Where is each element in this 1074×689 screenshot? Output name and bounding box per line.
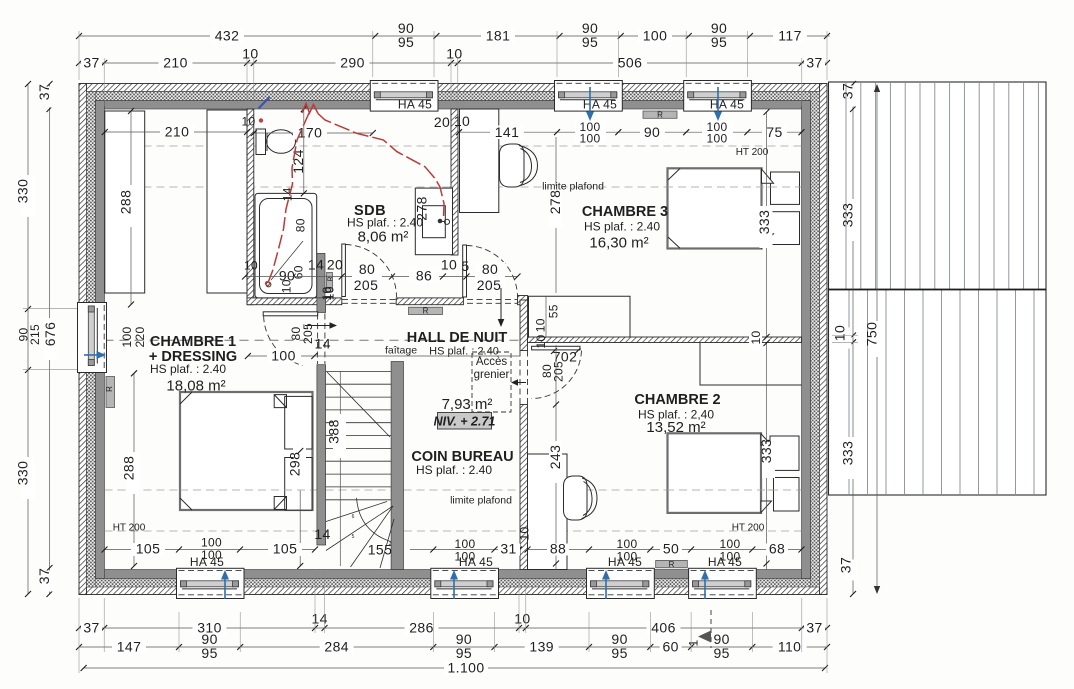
svg-text:286: 286 xyxy=(409,620,434,636)
svg-text:HS plaf. : 2.40: HS plaf. : 2.40 xyxy=(416,463,492,477)
svg-text:10: 10 xyxy=(832,325,848,341)
svg-text:86: 86 xyxy=(416,268,432,284)
svg-text:95: 95 xyxy=(711,34,727,50)
svg-text:155: 155 xyxy=(368,542,393,558)
svg-text:10: 10 xyxy=(517,527,531,541)
svg-text:20: 20 xyxy=(327,257,343,273)
svg-text:grenier: grenier xyxy=(474,369,510,381)
svg-text:1.100: 1.100 xyxy=(447,660,484,676)
svg-text:31: 31 xyxy=(500,541,516,557)
svg-text:215: 215 xyxy=(28,324,42,345)
svg-text:205: 205 xyxy=(477,277,502,293)
svg-text:333: 333 xyxy=(756,210,772,235)
svg-text:105: 105 xyxy=(273,541,298,557)
svg-text:220: 220 xyxy=(133,327,147,348)
svg-text:141: 141 xyxy=(495,124,520,140)
svg-text:68: 68 xyxy=(769,541,785,557)
svg-text:18,08 m²: 18,08 m² xyxy=(166,378,225,395)
svg-text:506: 506 xyxy=(618,55,643,71)
svg-text:14: 14 xyxy=(315,336,331,352)
svg-text:100: 100 xyxy=(271,348,296,364)
svg-text:10: 10 xyxy=(441,257,457,273)
svg-text:Accès: Accès xyxy=(476,356,508,368)
svg-text:100: 100 xyxy=(120,327,134,348)
svg-text:210: 210 xyxy=(165,124,190,140)
svg-text:R: R xyxy=(423,307,429,316)
svg-text:95: 95 xyxy=(714,645,730,661)
svg-text:100: 100 xyxy=(201,548,222,562)
svg-text:R: R xyxy=(105,386,114,392)
svg-text:333: 333 xyxy=(758,439,774,464)
svg-text:10: 10 xyxy=(244,259,258,273)
svg-text:100: 100 xyxy=(455,550,476,564)
svg-text:16,30 m²: 16,30 m² xyxy=(589,235,648,252)
svg-text:NIV. + 2.71: NIV. + 2.71 xyxy=(434,415,496,429)
svg-text:37: 37 xyxy=(83,55,99,71)
svg-text:7,93 m²: 7,93 m² xyxy=(442,396,493,413)
svg-text:750: 750 xyxy=(864,322,880,347)
svg-text:117: 117 xyxy=(778,28,802,44)
svg-text:CHAMBRE 3: CHAMBRE 3 xyxy=(582,204,668,220)
svg-text:205: 205 xyxy=(354,277,379,293)
svg-text:288: 288 xyxy=(121,456,137,481)
svg-text:290: 290 xyxy=(340,55,365,71)
svg-text:limite plafond: limite plafond xyxy=(450,495,512,507)
svg-text:95: 95 xyxy=(582,34,598,50)
svg-text:388: 388 xyxy=(326,419,342,444)
svg-text:330: 330 xyxy=(15,179,31,204)
svg-text:1: 1 xyxy=(687,639,701,646)
svg-text:10: 10 xyxy=(242,115,256,129)
svg-text:110: 110 xyxy=(778,639,802,655)
svg-text:HA 45: HA 45 xyxy=(583,98,617,112)
svg-text:HT 200: HT 200 xyxy=(732,523,765,534)
svg-text:5: 5 xyxy=(461,258,469,274)
svg-text:10: 10 xyxy=(534,318,548,332)
svg-text:95: 95 xyxy=(201,645,217,661)
svg-text:139: 139 xyxy=(529,639,554,655)
svg-text:243: 243 xyxy=(547,445,563,470)
svg-text:HT 200: HT 200 xyxy=(113,523,146,534)
svg-text:10: 10 xyxy=(749,331,763,345)
svg-text:181: 181 xyxy=(486,28,511,44)
svg-text:100: 100 xyxy=(617,550,638,564)
svg-text:80: 80 xyxy=(294,218,308,232)
svg-text:HA 45: HA 45 xyxy=(398,98,432,112)
svg-text:432: 432 xyxy=(215,28,240,44)
svg-text:13,52 m²: 13,52 m² xyxy=(646,419,705,436)
svg-text:37: 37 xyxy=(83,620,99,636)
svg-text:330: 330 xyxy=(15,461,31,486)
svg-text:284: 284 xyxy=(324,639,349,655)
svg-text:10: 10 xyxy=(320,287,334,301)
svg-text:CHAMBRE 2: CHAMBRE 2 xyxy=(634,392,720,408)
svg-text:100: 100 xyxy=(720,550,741,564)
svg-text:HS plaf. : 2.40: HS plaf. : 2.40 xyxy=(347,216,423,230)
svg-text:37: 37 xyxy=(840,83,856,99)
svg-text:75: 75 xyxy=(766,124,782,140)
svg-text:95: 95 xyxy=(398,34,414,50)
svg-text:210: 210 xyxy=(163,55,188,71)
svg-text:10: 10 xyxy=(514,611,530,627)
svg-text:10: 10 xyxy=(534,335,548,349)
svg-text:CHAMBRE 1: CHAMBRE 1 xyxy=(150,334,236,350)
svg-text:676: 676 xyxy=(42,322,58,347)
svg-text:8,06 m²: 8,06 m² xyxy=(358,229,409,246)
svg-text:R: R xyxy=(328,276,335,281)
svg-text:55: 55 xyxy=(547,304,561,318)
svg-text:5: 5 xyxy=(352,534,355,540)
svg-text:147: 147 xyxy=(117,639,142,655)
svg-text:105: 105 xyxy=(136,541,161,557)
svg-text:14: 14 xyxy=(314,526,330,542)
svg-text:333: 333 xyxy=(840,203,856,228)
svg-text:10: 10 xyxy=(454,113,470,129)
svg-text:60: 60 xyxy=(292,265,306,279)
svg-text:HT 200: HT 200 xyxy=(736,147,769,158)
svg-text:10: 10 xyxy=(242,46,258,62)
svg-text:60: 60 xyxy=(663,639,679,655)
svg-text:333: 333 xyxy=(840,441,856,466)
svg-text:298: 298 xyxy=(287,452,303,477)
svg-text:HA 45: HA 45 xyxy=(710,98,744,112)
svg-text:HS plaf. : 2.40: HS plaf. : 2.40 xyxy=(584,220,660,234)
svg-text:100: 100 xyxy=(707,132,728,146)
svg-text:90: 90 xyxy=(644,124,660,140)
svg-text:288: 288 xyxy=(118,190,134,215)
svg-text:88: 88 xyxy=(550,541,566,557)
svg-text:278: 278 xyxy=(413,196,429,221)
svg-text:limite plafond: limite plafond xyxy=(542,181,604,193)
svg-text:205: 205 xyxy=(301,323,315,344)
svg-text:faîtage: faîtage xyxy=(385,345,417,357)
svg-text:14: 14 xyxy=(308,257,324,273)
svg-text:278: 278 xyxy=(547,190,563,215)
svg-text:R: R xyxy=(669,560,675,569)
svg-text:406: 406 xyxy=(651,620,676,636)
svg-text:50: 50 xyxy=(663,541,679,557)
svg-text:100: 100 xyxy=(643,28,668,44)
svg-text:37: 37 xyxy=(806,620,822,636)
svg-text:10: 10 xyxy=(280,279,294,293)
svg-text:80: 80 xyxy=(359,261,375,277)
svg-text:37: 37 xyxy=(36,568,52,584)
svg-text:95: 95 xyxy=(611,645,627,661)
svg-text:HS plaf. : 2.40: HS plaf. : 2.40 xyxy=(150,362,226,376)
svg-text:37: 37 xyxy=(36,84,52,100)
svg-text:14: 14 xyxy=(312,611,328,627)
svg-text:100: 100 xyxy=(580,132,601,146)
svg-text:HALL DE NUIT: HALL DE NUIT xyxy=(407,330,508,346)
svg-text:10: 10 xyxy=(446,46,462,62)
svg-text:20: 20 xyxy=(434,114,450,130)
svg-text:14: 14 xyxy=(281,187,295,201)
svg-text:37: 37 xyxy=(838,557,854,573)
svg-text:205: 205 xyxy=(552,361,566,382)
svg-text:6: 6 xyxy=(352,514,355,520)
svg-text:37: 37 xyxy=(806,55,822,71)
svg-text:R: R xyxy=(657,110,663,119)
svg-text:80: 80 xyxy=(482,261,498,277)
svg-text:170: 170 xyxy=(298,125,323,141)
